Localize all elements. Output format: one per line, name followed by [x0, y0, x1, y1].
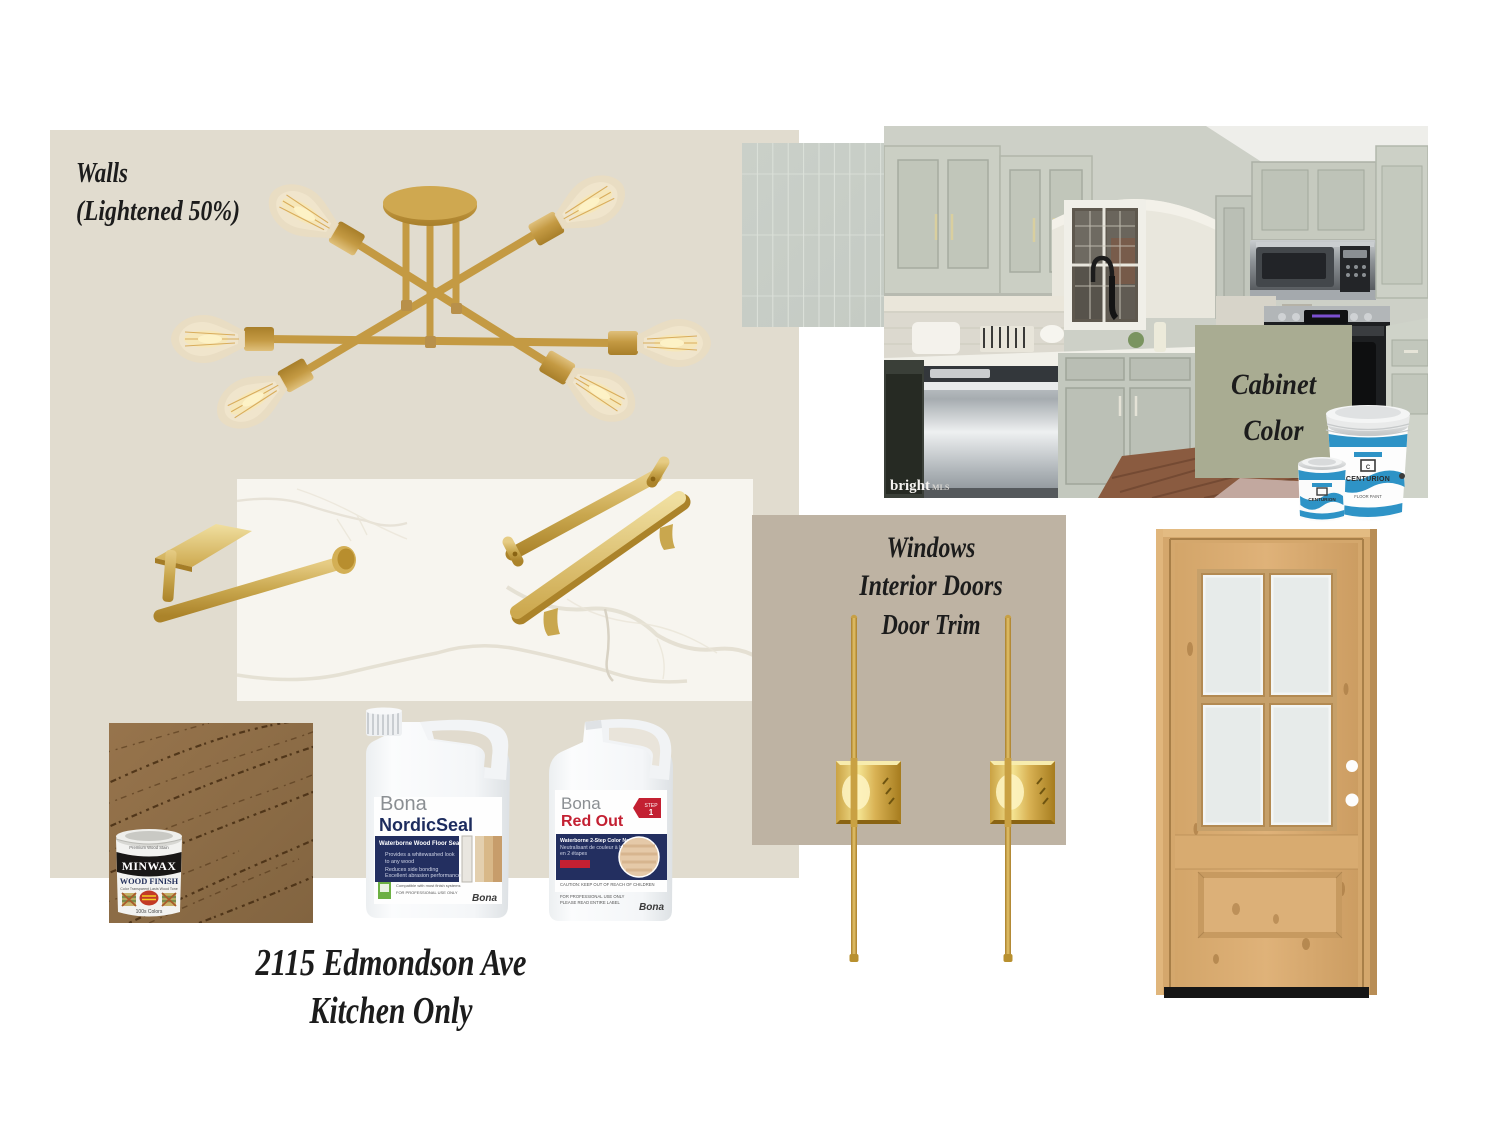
svg-text:Waterborne Wood Floor Sealer: Waterborne Wood Floor Sealer	[379, 841, 467, 847]
svg-text:100s Colors: 100s Colors	[136, 909, 163, 915]
svg-text:Bona: Bona	[561, 794, 601, 813]
svg-text:FLOOR PAINT: FLOOR PAINT	[1354, 494, 1382, 499]
svg-text:Bona: Bona	[380, 793, 428, 815]
svg-text:Provides a whitewashed look: Provides a whitewashed look	[385, 852, 455, 858]
svg-text:FOR PROFESSIONAL USE ONLY: FOR PROFESSIONAL USE ONLY	[560, 894, 625, 899]
svg-text:Bona: Bona	[472, 893, 497, 904]
svg-text:en 2 étapes: en 2 étapes	[560, 851, 588, 857]
svg-text:NordicSeal: NordicSeal	[379, 815, 473, 835]
svg-text:WOOD FINISH: WOOD FINISH	[120, 877, 179, 886]
svg-text:Bona: Bona	[639, 902, 664, 913]
svg-text:CENTURION: CENTURION	[1308, 497, 1336, 502]
svg-text:CAUTION: KEEP OUT OF REACH OF: CAUTION: KEEP OUT OF REACH OF CHILDREN	[560, 882, 655, 887]
svg-text:Premium Wood Stain: Premium Wood Stain	[129, 845, 169, 850]
svg-text:1: 1	[649, 808, 654, 817]
svg-text:to any wood: to any wood	[385, 859, 414, 865]
svg-text:Color Transparent Lasts Wood T: Color Transparent Lasts Wood Tone	[120, 887, 177, 891]
svg-text:MINWAX: MINWAX	[122, 859, 176, 873]
svg-text:FOR PROFESSIONAL USE ONLY: FOR PROFESSIONAL USE ONLY	[396, 890, 458, 895]
svg-text:CENTURION: CENTURION	[1346, 476, 1390, 483]
svg-text:PLEASE READ ENTIRE LABEL: PLEASE READ ENTIRE LABEL	[560, 900, 620, 905]
svg-text:C: C	[1366, 465, 1371, 471]
svg-text:Compatible with most finish sy: Compatible with most finish systems	[396, 883, 460, 888]
svg-text:Red Out: Red Out	[561, 813, 624, 830]
svg-text:Excellent abrasion performance: Excellent abrasion performance	[385, 873, 461, 879]
